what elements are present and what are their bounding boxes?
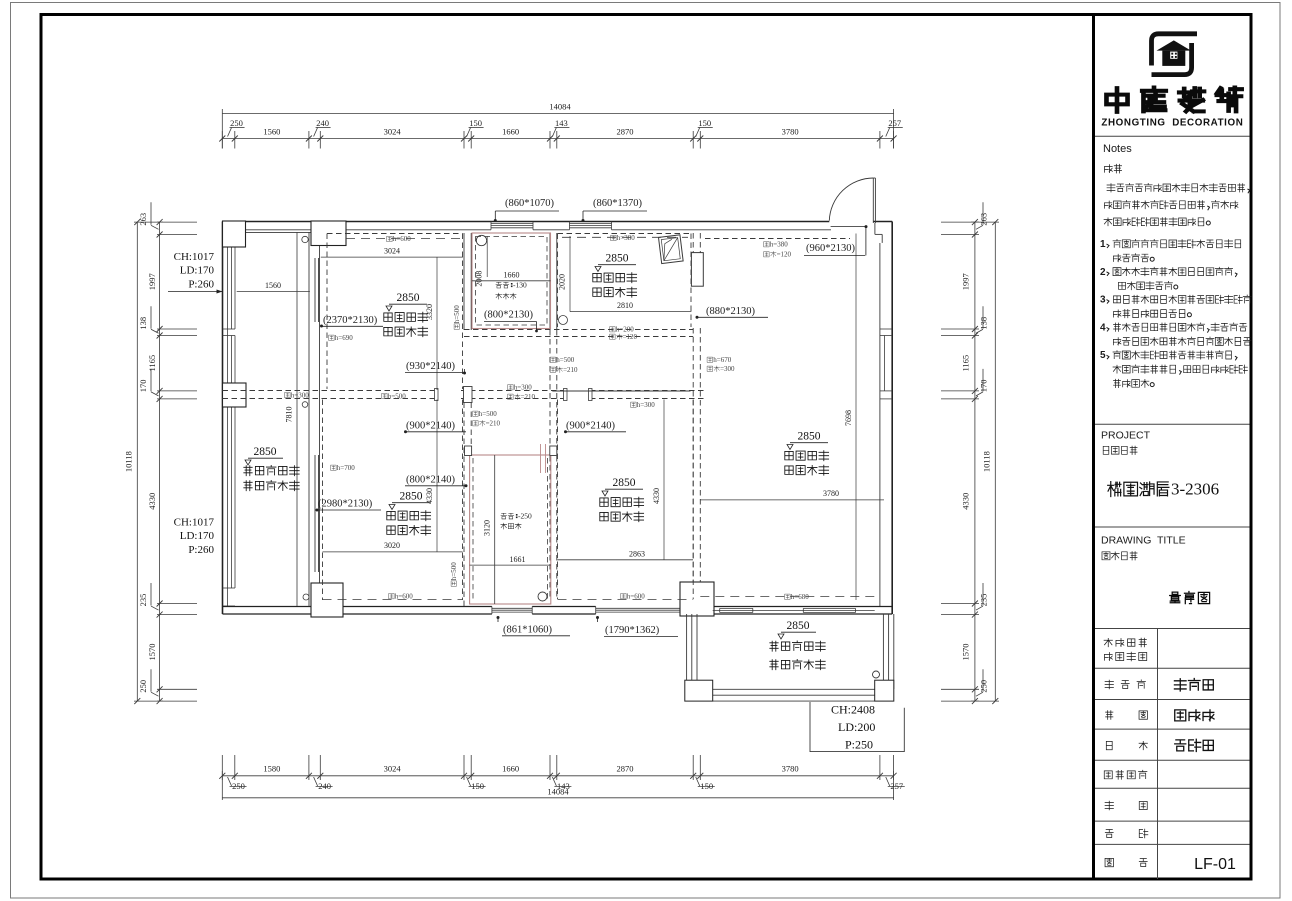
svg-text:2850: 2850 <box>254 446 277 458</box>
svg-text:263: 263 <box>979 213 989 226</box>
svg-text:1570: 1570 <box>961 643 971 660</box>
svg-text:2850: 2850 <box>798 431 821 443</box>
svg-text:h=600: h=600 <box>627 592 645 600</box>
svg-text:14084: 14084 <box>549 102 571 112</box>
svg-text:(800*2140): (800*2140) <box>406 474 455 485</box>
svg-text:150: 150 <box>469 118 482 128</box>
svg-text:257: 257 <box>890 781 903 791</box>
svg-text:(960*2130): (960*2130) <box>806 243 855 254</box>
svg-text:138: 138 <box>979 317 989 330</box>
svg-text:138: 138 <box>138 317 148 330</box>
svg-text:P:260: P:260 <box>188 279 214 291</box>
svg-text:h=690: h=690 <box>335 334 353 342</box>
svg-text:3780: 3780 <box>823 489 839 498</box>
svg-text:1560: 1560 <box>265 281 281 290</box>
svg-text:h=500: h=500 <box>450 562 458 580</box>
svg-text:(1790*1362): (1790*1362) <box>605 625 660 636</box>
svg-text:4330: 4330 <box>652 488 661 504</box>
svg-text:250: 250 <box>138 680 148 693</box>
svg-text:250: 250 <box>979 680 989 693</box>
svg-text:2850: 2850 <box>606 253 629 265</box>
svg-text:=210: =210 <box>563 366 578 374</box>
svg-text:143: 143 <box>555 118 568 128</box>
svg-text:2: 2 <box>1100 267 1106 278</box>
svg-text:h=680: h=680 <box>791 593 809 601</box>
svg-text:(800*2130): (800*2130) <box>484 310 533 321</box>
svg-text:h=300: h=300 <box>291 391 309 399</box>
svg-text:2020: 2020 <box>558 274 567 290</box>
svg-text:3024: 3024 <box>384 246 400 255</box>
svg-text:2008: 2008 <box>475 271 484 287</box>
svg-text:h=300: h=300 <box>514 384 532 392</box>
svg-text:7698: 7698 <box>844 410 853 426</box>
svg-text:235: 235 <box>979 594 989 607</box>
svg-text:h=500: h=500 <box>479 410 497 418</box>
svg-text:-130: -130 <box>513 281 527 290</box>
svg-text:h=670: h=670 <box>713 356 731 364</box>
svg-text:h=700: h=700 <box>337 464 355 472</box>
svg-text:170: 170 <box>138 380 148 393</box>
svg-text:4330: 4330 <box>147 493 157 510</box>
svg-text:Notes: Notes <box>1103 143 1132 155</box>
svg-text:10118: 10118 <box>124 451 134 472</box>
svg-text:4: 4 <box>1100 322 1106 333</box>
svg-text:1165: 1165 <box>147 355 157 372</box>
svg-text:3024: 3024 <box>384 764 402 774</box>
svg-text:LF-01: LF-01 <box>1194 856 1236 873</box>
svg-text:1661: 1661 <box>510 555 526 564</box>
svg-text:2850: 2850 <box>787 620 810 632</box>
svg-text:240: 240 <box>318 781 331 791</box>
svg-text:-250: -250 <box>518 512 532 521</box>
svg-text:14084: 14084 <box>547 787 569 797</box>
svg-text:4330: 4330 <box>961 493 971 510</box>
svg-text:3: 3 <box>1100 295 1106 306</box>
svg-text:LD:170: LD:170 <box>180 265 215 277</box>
svg-text:5: 5 <box>1100 350 1106 361</box>
svg-text:=120: =120 <box>777 251 792 259</box>
svg-text:1660: 1660 <box>502 127 519 137</box>
svg-text:3780: 3780 <box>782 764 799 774</box>
svg-text:=300: =300 <box>720 365 735 373</box>
svg-text:2870: 2870 <box>617 127 634 137</box>
svg-text:3320: 3320 <box>425 304 434 320</box>
svg-text:1580: 1580 <box>263 764 280 774</box>
svg-text:3020: 3020 <box>384 541 400 550</box>
svg-text:257: 257 <box>888 118 901 128</box>
svg-text:2870: 2870 <box>617 764 634 774</box>
svg-text:2863: 2863 <box>629 549 645 558</box>
svg-text:DRAWING TITLE: DRAWING TITLE <box>1101 535 1186 547</box>
svg-text:CH:1017: CH:1017 <box>174 517 215 529</box>
svg-text:(900*2140): (900*2140) <box>406 420 455 431</box>
svg-text:=120: =120 <box>623 333 638 341</box>
svg-text:h=380: h=380 <box>617 234 635 242</box>
svg-text:1997: 1997 <box>961 273 971 290</box>
svg-text:235: 235 <box>138 594 148 607</box>
svg-text:1: 1 <box>1100 239 1106 250</box>
svg-text:1560: 1560 <box>263 127 280 137</box>
svg-text:(2370*2130): (2370*2130) <box>323 315 378 326</box>
svg-text:1660: 1660 <box>504 271 520 280</box>
svg-text:1660: 1660 <box>502 764 519 774</box>
svg-text:P:250: P:250 <box>845 738 873 752</box>
svg-text:(930*2140): (930*2140) <box>406 361 455 372</box>
svg-text:7810: 7810 <box>285 407 294 423</box>
svg-text:1165: 1165 <box>961 355 971 372</box>
svg-text:h=600: h=600 <box>393 235 411 243</box>
svg-text:(860*1370): (860*1370) <box>593 198 642 209</box>
svg-text:10118: 10118 <box>982 451 992 472</box>
svg-text:h=500: h=500 <box>388 392 406 400</box>
svg-text:2810: 2810 <box>617 301 633 310</box>
svg-text:240: 240 <box>316 118 329 128</box>
svg-text:1997: 1997 <box>147 273 157 290</box>
svg-text:(880*2130): (880*2130) <box>706 306 755 317</box>
svg-text:PROJECT: PROJECT <box>1101 430 1151 442</box>
svg-text:=210: =210 <box>486 420 501 428</box>
svg-text:250: 250 <box>232 781 245 791</box>
svg-text:170: 170 <box>979 380 989 393</box>
svg-text:P:260: P:260 <box>188 544 214 556</box>
svg-text:250: 250 <box>230 118 243 128</box>
svg-text:h=500: h=500 <box>556 356 574 364</box>
svg-text:CH:2408: CH:2408 <box>831 703 875 717</box>
svg-text:ZHONGTING DECORATION: ZHONGTING DECORATION <box>1101 118 1243 129</box>
svg-text:LD:200: LD:200 <box>838 720 875 734</box>
svg-text:=210: =210 <box>521 393 536 401</box>
svg-text:2850: 2850 <box>400 491 423 503</box>
svg-text:150: 150 <box>471 781 484 791</box>
svg-text:3120: 3120 <box>483 520 492 536</box>
svg-text:3-2306: 3-2306 <box>1171 480 1219 499</box>
svg-text:(2980*2130): (2980*2130) <box>318 499 373 510</box>
svg-text:h=500: h=500 <box>453 305 461 323</box>
svg-text:3024: 3024 <box>384 127 402 137</box>
svg-text:(860*1070): (860*1070) <box>505 198 554 209</box>
svg-text:(861*1060): (861*1060) <box>503 624 552 635</box>
svg-text:3780: 3780 <box>782 127 799 137</box>
svg-text:CH:1017: CH:1017 <box>174 251 215 263</box>
svg-text:2850: 2850 <box>397 292 420 304</box>
svg-text:h=380: h=380 <box>770 241 788 249</box>
svg-text:1570: 1570 <box>147 643 157 660</box>
svg-text:4330: 4330 <box>425 488 434 504</box>
svg-text:LD:170: LD:170 <box>180 530 215 542</box>
svg-text:150: 150 <box>700 781 713 791</box>
svg-text:(900*2140): (900*2140) <box>566 420 615 431</box>
svg-text:h=600: h=600 <box>395 592 413 600</box>
svg-text:150: 150 <box>698 118 711 128</box>
svg-text:2850: 2850 <box>613 477 636 489</box>
svg-text:h=300: h=300 <box>637 401 655 409</box>
